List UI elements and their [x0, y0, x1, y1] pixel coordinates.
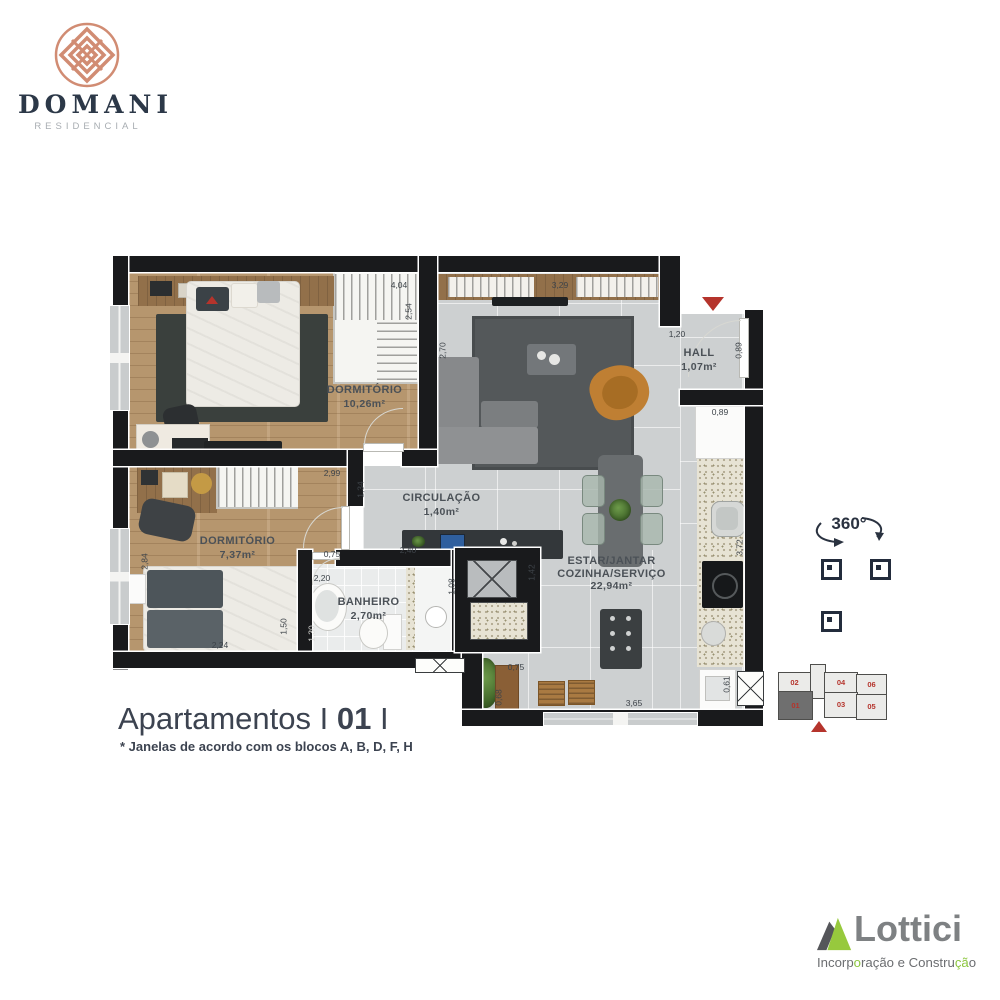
desk-2-frame [141, 470, 158, 485]
footnote: * Janelas de acordo com os blocos A, B, … [120, 739, 413, 754]
island-knob [626, 646, 631, 651]
dimension: 2,24 [200, 640, 240, 651]
bookshelf-books-left [448, 277, 534, 297]
qr-code [818, 556, 894, 635]
room-label-hall: HALL 1,07m² [664, 346, 734, 374]
dimension: 0,75 [312, 549, 352, 560]
island-knob [610, 631, 615, 636]
dining-chair [582, 475, 605, 507]
room-area: 7,37m² [220, 549, 256, 561]
island-knob [610, 616, 615, 621]
builder-name: Lottici [854, 908, 962, 950]
tagline-part: çã [955, 955, 969, 970]
stool [568, 680, 595, 705]
desk-2-lamp [191, 473, 212, 494]
room-label-banheiro: BANHEIRO 2,70m² [306, 595, 431, 623]
qr-finder [870, 559, 891, 580]
qr-finder [821, 611, 842, 632]
map-unit-04: 04 [824, 672, 858, 694]
dimension: 2,40 [388, 545, 428, 556]
room-area: 10,26m² [344, 398, 386, 410]
dimension: 0,75 [496, 662, 536, 673]
shelf-box [150, 281, 172, 296]
island-knob [626, 631, 631, 636]
dimension: 3,65 [614, 698, 654, 709]
page: DOMANI RESIDENCIAL [0, 0, 1000, 1000]
dimension: 2,54 [404, 292, 415, 332]
dimension: 3,29 [540, 280, 580, 291]
wall [680, 390, 763, 405]
room-name: CIRCULAÇÃO [403, 492, 481, 504]
shaft-ledge [470, 602, 528, 640]
map-unit-01-selected: 01 [778, 691, 813, 720]
dimension: 1,42 [527, 553, 538, 593]
floor-plan: DORMITÓRIO 10,26m² DORMITÓRIO 7,37m² BAN… [0, 0, 1000, 1000]
room-label-estar: ESTAR/JANTAR COZINHA/SERVIÇO 22,94m² [548, 555, 675, 593]
dining-chair [582, 513, 605, 545]
coffee-table-decor-1 [537, 351, 546, 360]
page-title: Apartamentos I 01 I [118, 701, 389, 737]
room-area: 1,07m² [681, 361, 717, 373]
wall [402, 450, 437, 466]
island-knob [610, 646, 615, 651]
room-name: DORMITÓRIO [327, 384, 403, 396]
dimension: 2,84 [140, 542, 151, 582]
dimension: 2,70 [438, 331, 449, 371]
kitchen-island [600, 609, 642, 669]
dimension: 0,68 [494, 678, 505, 718]
dining-chair [640, 513, 663, 545]
lottici-triangle-icon [816, 914, 854, 954]
bookshelf-books-right [576, 277, 658, 297]
viewer-label: 360° [819, 514, 879, 534]
single-bed-pillow-1 [147, 570, 223, 608]
stool [538, 681, 565, 706]
room-name: HALL [684, 347, 715, 359]
pillow-accent [206, 296, 218, 304]
wardrobe-2 [216, 467, 298, 509]
dimension: 3,72 [735, 528, 746, 568]
duct-hatch [415, 658, 465, 673]
pillow-white [231, 283, 258, 308]
shaft-duct [467, 560, 517, 598]
rack-decor [500, 538, 507, 545]
room-name: COZINHA/SERVIÇO [557, 568, 665, 580]
map-unit-03: 03 [824, 692, 858, 718]
entry-arrow-icon [702, 297, 724, 311]
dimension: 1,50 [279, 607, 290, 647]
dimension: 1,34 [356, 470, 367, 510]
qr-pattern [821, 559, 891, 632]
dimension: 1,30 [307, 614, 318, 654]
tagline-part: Incorp [817, 955, 854, 970]
corner-duct-hatch [737, 671, 764, 706]
sofa-corner [481, 401, 538, 428]
sofa-seats [433, 427, 538, 464]
unit-location-map: 02 04 06 01 03 05 [778, 664, 890, 722]
dimension: 0,89 [734, 331, 745, 371]
counter-basin [701, 621, 726, 646]
title-separator: I [380, 701, 389, 736]
tagline-part: o [854, 955, 861, 970]
room-name: ESTAR/JANTAR [567, 555, 655, 567]
title-prefix: Apartamentos [118, 701, 311, 736]
wall [113, 450, 363, 466]
wall [419, 256, 437, 466]
builder-tagline: Incorporação e Construção [817, 955, 976, 970]
builder-logo: Lottici Incorporação e Construção [800, 908, 995, 983]
room-area: 1,40m² [424, 506, 460, 518]
room-name: BANHEIRO [338, 596, 400, 608]
room-label-dormitorio-1: DORMITÓRIO 10,26m² [302, 383, 427, 411]
window [109, 528, 130, 625]
coffee-table-decor-2 [549, 354, 560, 365]
desk-plate [142, 431, 159, 448]
dimension: 2,20 [302, 573, 342, 584]
dimension: 0,89 [700, 407, 740, 418]
island-knob [626, 616, 631, 621]
tagline-part: ração e Constru [861, 955, 955, 970]
rack-decor [512, 541, 517, 546]
cooktop-burner [712, 573, 738, 599]
title-separator: I [320, 701, 329, 736]
wall [113, 256, 437, 272]
map-unit-06: 06 [856, 674, 887, 696]
dining-chair [640, 475, 663, 507]
desk-2-papers [162, 472, 188, 498]
pillow-gray [257, 281, 280, 303]
window [109, 305, 130, 411]
room-label-circulacao: CIRCULAÇÃO 1,40m² [379, 491, 504, 519]
map-unit-02: 02 [778, 672, 811, 693]
room-name: DORMITÓRIO [200, 535, 276, 547]
dimension: 0,61 [722, 665, 733, 705]
dimension: 1,20 [657, 329, 697, 340]
wall [660, 256, 680, 326]
room-area: 2,70m² [351, 610, 387, 622]
dimension: 1,08 [447, 567, 458, 607]
map-unit-05: 05 [856, 694, 887, 720]
title-unit-number: 01 [337, 701, 371, 736]
dimension: 2,99 [312, 468, 352, 479]
table-plant [609, 499, 631, 521]
viewer-360: 360° [806, 508, 892, 552]
room-label-dormitorio-2: DORMITÓRIO 7,37m² [175, 534, 300, 562]
wall [427, 256, 680, 272]
room-area: 22,94m² [591, 580, 633, 592]
dimension: 4,04 [379, 280, 419, 291]
qr-finder [821, 559, 842, 580]
window [543, 712, 698, 726]
tv [492, 297, 568, 306]
tagline-part: o [969, 955, 976, 970]
map-position-arrow-icon [811, 721, 827, 732]
